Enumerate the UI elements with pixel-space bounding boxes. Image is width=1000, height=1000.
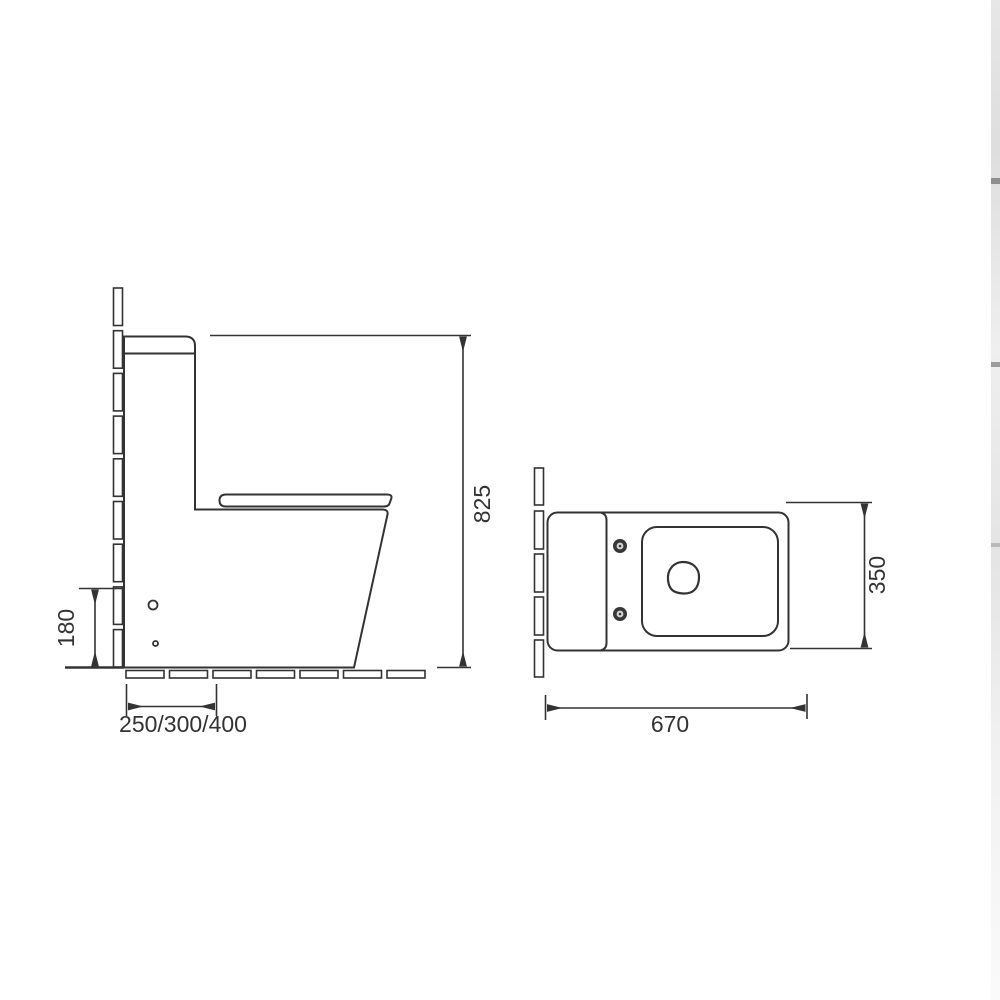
sliver-artifact [991, 178, 1000, 184]
fixing-hole-small [153, 641, 158, 646]
dim-label-rough-in: 250/300/400 [119, 711, 247, 737]
fixing-hole-large [149, 601, 158, 610]
hinge-bolt-bottom [613, 607, 627, 621]
hinge-bolt-top [613, 539, 627, 553]
tank-divider-line [601, 513, 607, 650]
sliver-artifact [991, 543, 1000, 547]
bowl-outlet [668, 562, 699, 594]
seat-profile [220, 495, 392, 507]
adjacent-image-sliver [991, 0, 1000, 1000]
toilet-profile-outline [124, 337, 388, 668]
sliver-artifact [991, 362, 1000, 367]
dim-label-180: 180 [53, 609, 79, 647]
floor-hatching [126, 671, 425, 679]
seat-rim [642, 527, 778, 636]
technical-drawing: 825 180 250/300/400 [0, 0, 1000, 1000]
side-view: 825 180 250/300/400 [53, 288, 495, 737]
drawing-canvas: 825 180 250/300/400 [0, 0, 1000, 1000]
wall-hatching-side [114, 288, 123, 667]
dim-label-825: 825 [469, 485, 495, 523]
wall-hatching-top [535, 468, 544, 677]
top-view: 350 670 [535, 468, 891, 737]
dim-outlet-height [79, 589, 122, 667]
dim-depth [786, 503, 872, 649]
dim-label-350: 350 [864, 556, 890, 594]
dim-total-height [210, 336, 471, 668]
dim-label-670: 670 [651, 711, 689, 737]
